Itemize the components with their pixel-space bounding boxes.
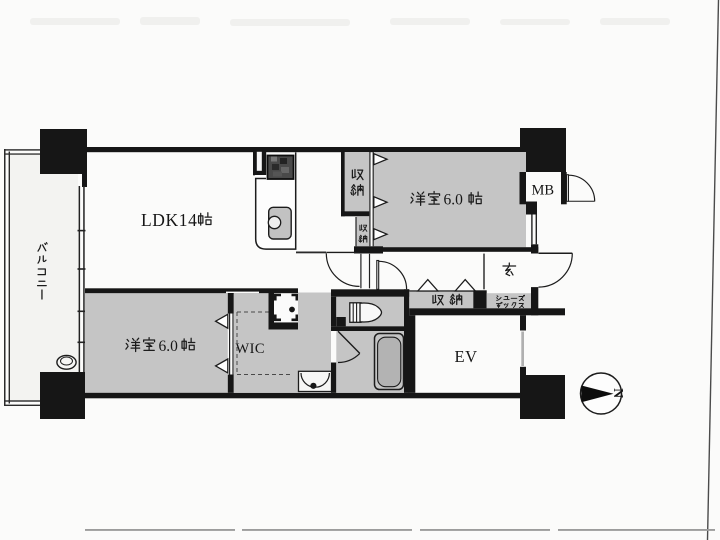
svg-text:EV: EV: [455, 347, 478, 366]
svg-text:6.0: 6.0: [159, 338, 179, 355]
svg-text:MB: MB: [532, 183, 555, 199]
svg-text:WIC: WIC: [236, 341, 265, 357]
svg-text:6.0: 6.0: [444, 192, 464, 209]
svg-text:N: N: [611, 388, 626, 398]
svg-text:LDK14: LDK14: [141, 210, 197, 230]
